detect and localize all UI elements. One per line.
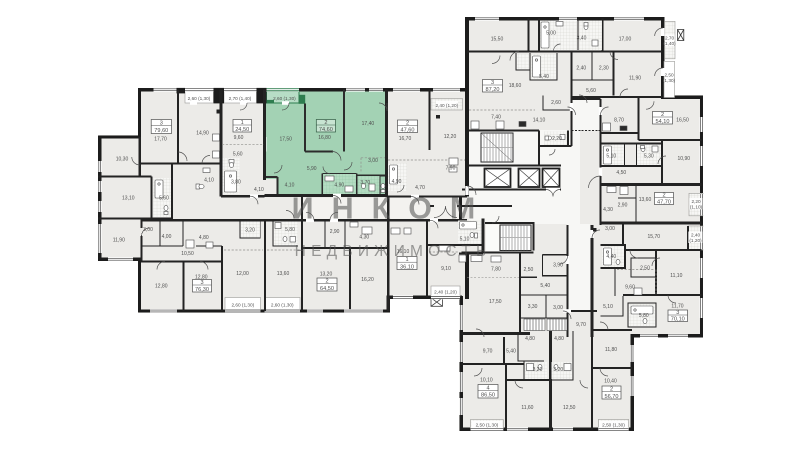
svg-text:36,10: 36,10 bbox=[400, 264, 414, 270]
svg-text:4,70: 4,70 bbox=[415, 185, 425, 191]
svg-text:2,30: 2,30 bbox=[599, 65, 609, 71]
svg-text:4,80: 4,80 bbox=[554, 336, 564, 342]
svg-text:2,70: 2,70 bbox=[665, 36, 675, 41]
svg-text:47,60: 47,60 bbox=[401, 127, 415, 133]
svg-text:3,70: 3,70 bbox=[360, 180, 370, 186]
svg-text:16,20: 16,20 bbox=[361, 277, 374, 283]
svg-text:86,50: 86,50 bbox=[481, 393, 495, 399]
svg-text:3,20: 3,20 bbox=[245, 227, 255, 233]
svg-text:2,40: 2,40 bbox=[576, 65, 586, 71]
svg-text:2,90: 2,90 bbox=[618, 202, 628, 208]
svg-text:2,20: 2,20 bbox=[552, 136, 562, 142]
svg-text:64,50: 64,50 bbox=[320, 286, 334, 292]
svg-text:3,20: 3,20 bbox=[533, 367, 543, 373]
svg-text:9,60: 9,60 bbox=[234, 135, 244, 141]
svg-text:12,80: 12,80 bbox=[155, 284, 168, 290]
svg-text:(1,10): (1,10) bbox=[690, 205, 703, 210]
svg-text:3,40: 3,40 bbox=[577, 35, 587, 41]
svg-text:4,10: 4,10 bbox=[204, 177, 214, 183]
svg-text:47,70: 47,70 bbox=[657, 199, 671, 205]
svg-text:13,60: 13,60 bbox=[639, 197, 652, 203]
svg-text:14,90: 14,90 bbox=[196, 130, 209, 136]
svg-text:5,90: 5,90 bbox=[307, 166, 317, 172]
svg-text:5,60: 5,60 bbox=[159, 195, 169, 201]
svg-text:НЕДВИЖИМОСТЬ: НЕДВИЖИМОСТЬ bbox=[295, 243, 492, 260]
svg-text:2,50: 2,50 bbox=[664, 73, 674, 78]
svg-text:17,00: 17,00 bbox=[619, 37, 632, 43]
svg-text:2,50: 2,50 bbox=[524, 267, 534, 273]
svg-text:11,60: 11,60 bbox=[521, 405, 533, 411]
svg-text:15,70: 15,70 bbox=[648, 234, 661, 240]
svg-text:2,60 (1,30): 2,60 (1,30) bbox=[271, 303, 294, 308]
svg-text:4,10: 4,10 bbox=[254, 187, 264, 193]
svg-text:7,40: 7,40 bbox=[491, 114, 501, 120]
svg-text:54,10: 54,10 bbox=[656, 119, 670, 125]
svg-text:3,80: 3,80 bbox=[231, 180, 241, 186]
svg-text:11,90: 11,90 bbox=[629, 75, 641, 81]
svg-text:87,20: 87,20 bbox=[486, 87, 500, 93]
svg-text:4,30: 4,30 bbox=[359, 235, 369, 241]
svg-text:4,40: 4,40 bbox=[606, 254, 616, 260]
svg-text:3,30: 3,30 bbox=[528, 304, 538, 310]
svg-text:2: 2 bbox=[324, 120, 327, 126]
svg-text:2: 2 bbox=[325, 279, 328, 285]
svg-text:16,70: 16,70 bbox=[399, 136, 412, 142]
svg-text:3: 3 bbox=[200, 280, 203, 286]
svg-text:3,90: 3,90 bbox=[553, 262, 563, 268]
svg-text:17,50: 17,50 bbox=[489, 299, 502, 305]
svg-text:2,50 (1,30): 2,50 (1,30) bbox=[476, 423, 499, 428]
svg-text:2,50: 2,50 bbox=[640, 266, 650, 272]
svg-text:12,80: 12,80 bbox=[195, 274, 208, 280]
svg-text:3,00: 3,00 bbox=[368, 158, 378, 164]
svg-text:2,40 (1,20): 2,40 (1,20) bbox=[434, 290, 457, 295]
svg-text:7,80: 7,80 bbox=[491, 267, 501, 273]
svg-text:5,10: 5,10 bbox=[460, 236, 470, 242]
svg-text:(1,40): (1,40) bbox=[663, 41, 676, 46]
svg-text:2,70 (1,40): 2,70 (1,40) bbox=[229, 96, 252, 101]
svg-text:5,40: 5,40 bbox=[506, 349, 516, 355]
svg-text:3: 3 bbox=[160, 121, 163, 127]
svg-text:5,80: 5,80 bbox=[285, 227, 295, 233]
svg-text:8,70: 8,70 bbox=[614, 117, 624, 123]
svg-text:3,00: 3,00 bbox=[605, 226, 615, 232]
svg-text:9,60: 9,60 bbox=[625, 284, 635, 290]
svg-text:12,50: 12,50 bbox=[563, 405, 576, 411]
svg-text:17,40: 17,40 bbox=[362, 121, 375, 127]
svg-text:17,70: 17,70 bbox=[154, 137, 167, 143]
svg-text:2,60 (1,30): 2,60 (1,30) bbox=[188, 96, 211, 101]
svg-text:2: 2 bbox=[610, 387, 613, 393]
svg-text:1: 1 bbox=[241, 120, 244, 126]
svg-text:12,20: 12,20 bbox=[444, 134, 457, 140]
svg-text:(1,20): (1,20) bbox=[689, 238, 702, 243]
svg-text:15,50: 15,50 bbox=[491, 37, 504, 43]
svg-text:11,90: 11,90 bbox=[113, 237, 125, 243]
svg-text:17,50: 17,50 bbox=[279, 137, 292, 143]
svg-text:9,10: 9,10 bbox=[441, 266, 451, 272]
svg-text:13,60: 13,60 bbox=[277, 271, 290, 277]
svg-text:4: 4 bbox=[486, 385, 489, 391]
svg-text:5,10: 5,10 bbox=[603, 304, 613, 310]
svg-text:4,80: 4,80 bbox=[199, 235, 209, 241]
svg-text:16,50: 16,50 bbox=[676, 117, 689, 123]
svg-text:5,00: 5,00 bbox=[546, 30, 556, 36]
svg-text:2,60 (1,30): 2,60 (1,30) bbox=[273, 96, 296, 101]
svg-text:4,90: 4,90 bbox=[392, 179, 402, 185]
svg-text:2,40 (1,20): 2,40 (1,20) bbox=[435, 103, 458, 108]
svg-text:4,50: 4,50 bbox=[616, 170, 626, 176]
svg-text:4,90: 4,90 bbox=[334, 183, 344, 189]
svg-text:2,60 (1,30): 2,60 (1,30) bbox=[231, 303, 254, 308]
svg-text:3: 3 bbox=[491, 80, 494, 86]
svg-text:2,60: 2,60 bbox=[551, 100, 561, 106]
svg-text:ИНКОМ: ИНКОМ bbox=[292, 192, 494, 226]
svg-text:56,70: 56,70 bbox=[605, 394, 619, 400]
svg-text:3: 3 bbox=[676, 310, 679, 316]
svg-text:5,60: 5,60 bbox=[233, 151, 243, 157]
svg-text:(1,30): (1,30) bbox=[663, 78, 676, 83]
svg-text:9,70: 9,70 bbox=[483, 349, 493, 355]
svg-text:5,40: 5,40 bbox=[540, 283, 550, 289]
svg-text:3,00: 3,00 bbox=[143, 227, 153, 233]
svg-text:2,50 (1,30): 2,50 (1,30) bbox=[602, 423, 625, 428]
svg-text:10,90: 10,90 bbox=[678, 156, 691, 162]
svg-text:13,10: 13,10 bbox=[122, 195, 135, 201]
svg-text:11,80: 11,80 bbox=[605, 347, 617, 353]
svg-text:13,20: 13,20 bbox=[320, 272, 333, 278]
svg-text:4,10: 4,10 bbox=[285, 183, 295, 189]
svg-text:4,80: 4,80 bbox=[525, 336, 535, 342]
svg-text:10,30: 10,30 bbox=[116, 156, 129, 162]
svg-text:5,10: 5,10 bbox=[606, 154, 616, 160]
svg-text:5,60: 5,60 bbox=[586, 88, 596, 94]
svg-text:2: 2 bbox=[406, 121, 409, 127]
svg-text:2: 2 bbox=[661, 112, 664, 118]
svg-text:2: 2 bbox=[662, 193, 665, 199]
svg-text:4,30: 4,30 bbox=[603, 207, 613, 213]
svg-text:70,10: 70,10 bbox=[671, 317, 685, 323]
svg-text:79,60: 79,60 bbox=[154, 128, 168, 134]
svg-text:10,50: 10,50 bbox=[181, 251, 194, 257]
svg-text:5,80: 5,80 bbox=[639, 313, 649, 319]
svg-text:5,30: 5,30 bbox=[644, 154, 654, 160]
svg-text:10,40: 10,40 bbox=[604, 378, 617, 384]
svg-text:4,00: 4,00 bbox=[162, 234, 172, 240]
svg-text:9,70: 9,70 bbox=[576, 322, 586, 328]
svg-text:14,10: 14,10 bbox=[533, 117, 546, 123]
svg-text:76,30: 76,30 bbox=[195, 287, 209, 293]
svg-text:10,10: 10,10 bbox=[480, 377, 493, 383]
svg-text:24,50: 24,50 bbox=[235, 127, 249, 133]
svg-text:11,70: 11,70 bbox=[671, 304, 683, 310]
svg-text:12,00: 12,00 bbox=[236, 271, 249, 277]
svg-text:16,80: 16,80 bbox=[318, 135, 331, 141]
svg-text:2,20: 2,20 bbox=[691, 199, 701, 204]
svg-text:2,40: 2,40 bbox=[691, 233, 701, 238]
svg-text:2,90: 2,90 bbox=[330, 229, 340, 235]
svg-text:3,00: 3,00 bbox=[553, 305, 563, 311]
svg-text:7,90: 7,90 bbox=[446, 165, 456, 171]
svg-text:11,10: 11,10 bbox=[670, 273, 682, 279]
svg-text:74,60: 74,60 bbox=[319, 127, 333, 133]
svg-text:18,60: 18,60 bbox=[509, 83, 522, 89]
svg-text:5,40: 5,40 bbox=[539, 74, 549, 80]
svg-text:3,20: 3,20 bbox=[553, 367, 563, 373]
